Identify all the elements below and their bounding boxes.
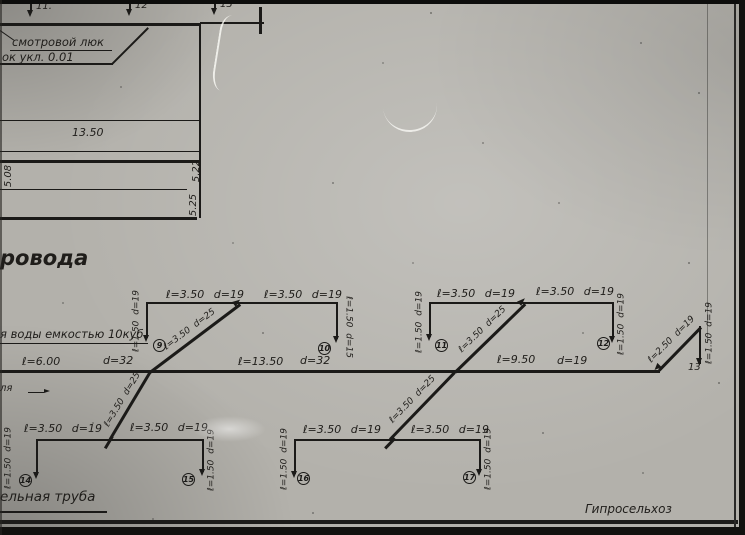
photo-edge-top [0, 0, 745, 4]
branchD-node-left: 16 [297, 472, 310, 485]
branchD-node-right: 17 [463, 471, 476, 484]
branchB-left-arrow-icon [426, 334, 432, 341]
branchC-left-arrow-icon [33, 472, 39, 479]
branchB-right-riser-label: ℓ=1.50 d=19 [618, 293, 627, 355]
branchB-left-riser [429, 302, 431, 337]
plan-marker-13-arrow-icon [211, 8, 217, 15]
plan-marker-11-arrow-icon [27, 10, 33, 17]
branchA-right-riser-label: ℓ=1.50 d=15 [344, 296, 353, 358]
main-seg2-diameter: d=32 [300, 355, 330, 366]
branchC-node-right: 15 [182, 473, 195, 486]
branchA-top-line [147, 302, 337, 304]
branchC-left-riser [36, 439, 38, 475]
branchA-diagonal-upper-label: ℓ=3.50 d=25 [163, 308, 218, 352]
plan-marker-12-arrow-icon [126, 9, 132, 16]
branchC-node-left: 14 [19, 474, 32, 487]
branchB-top-left-label: ℓ=3.50 d=19 [437, 288, 515, 299]
branchC-right-riser [202, 439, 204, 472]
branchB-left-riser-label: ℓ=1.50 d=19 [416, 291, 425, 353]
scheme-title-fragment: ровода [0, 248, 88, 269]
branchC-top-line [36, 439, 204, 441]
main-seg1-diameter: d=32 [103, 355, 133, 366]
plan-line-2-thick [0, 160, 200, 163]
main-seg3-diameter: d=19 [557, 355, 587, 366]
branchA-right-arrow-icon [333, 336, 339, 343]
plan-line-3 [0, 189, 187, 190]
photo-edge-right [739, 0, 745, 535]
end-node-label: 13 [688, 363, 701, 373]
branchC-top-left-label: ℓ=3.50 d=19 [24, 423, 102, 434]
branchA-left-riser-label: ℓ=1.50 d=19 [133, 290, 142, 352]
ground-arrow-icon [44, 389, 50, 393]
callout-diagonal-edge [111, 27, 148, 64]
plan-end-flange [259, 7, 262, 34]
branchA-top-left-label: ℓ=3.50 d=19 [166, 289, 244, 300]
branchA-top-right-label: ℓ=3.50 d=19 [264, 289, 342, 300]
photo-edge-bottom [0, 527, 745, 535]
plan-dim-width: 13.50 [72, 127, 104, 138]
branchD-right-riser-label: ℓ=1.50 d=19 [485, 428, 494, 490]
faint-right-line [707, 0, 708, 340]
photo-edge-left [0, 0, 2, 535]
plan-dim-left: 5.08 [4, 165, 14, 187]
branchB-node-left: 11 [435, 339, 448, 352]
ground-arrow-line [28, 392, 44, 393]
branchB-node-right: 12 [597, 337, 610, 350]
pipe-note-underline [0, 511, 107, 513]
branchA-left-riser [146, 302, 148, 338]
branchB-top-right-label: ℓ=3.50 d=19 [536, 286, 614, 297]
plan-dim-right-upper: 5.22 [192, 160, 202, 182]
branchD-right-arrow-icon [476, 469, 482, 476]
branchD-right-riser [479, 439, 481, 472]
frame-bottom-line [0, 520, 738, 524]
main-seg2-length: ℓ=13.50 [238, 356, 283, 367]
tank-note: я воды емкостью 10куб [0, 329, 143, 341]
callout-text-slope: ок укл. 0.01 [2, 52, 74, 64]
photo-scratch-2 [380, 77, 439, 134]
org-label: Гипросельхоз [585, 503, 672, 515]
plan-dim-right-lower: 5.25 [189, 194, 199, 216]
plan-line-0 [0, 120, 200, 121]
branchA-left-arrow-icon [143, 335, 149, 342]
photo-specks [0, 0, 2, 2]
plan-line-1 [0, 151, 200, 152]
branchD-top-line [294, 439, 481, 441]
photo-smudge [192, 416, 266, 442]
plan-vertical-wall [199, 25, 201, 218]
branchD-top-left-label: ℓ=3.50 d=19 [303, 424, 381, 435]
branchA-node-right: 10 [318, 342, 331, 355]
branchC-left-riser-label: ℓ=1.50 d=19 [5, 427, 14, 489]
photo-scratch-1 [210, 14, 252, 94]
tank-note-underline [0, 343, 148, 344]
branchD-top-right-label: ℓ=3.50 d=19 [411, 424, 489, 435]
branchD-left-riser [294, 439, 296, 474]
branchA-diagonal-upper [149, 303, 241, 373]
frame-right-line [734, 0, 736, 527]
pipe-note: ельная труба [0, 491, 95, 505]
plan-wall-line-thick [0, 23, 201, 26]
plan-line-4-thick [0, 217, 197, 220]
main-pipe-line [0, 370, 660, 373]
main-seg3-length: ℓ=9.50 [497, 354, 535, 365]
branchB-right-riser [612, 302, 614, 339]
branchD-left-riser-label: ℓ=1.50 d=19 [281, 428, 290, 490]
branchC-junction-tick [104, 436, 113, 449]
scanned-pipeline-drawing: 11. 12 13 смотровой люк ок укл. 0.01 13.… [0, 0, 745, 535]
branchC-right-arrow-icon [199, 469, 205, 476]
main-seg1-length: ℓ=6.00 [22, 356, 60, 367]
callout-text-hatch: смотровой люк [12, 37, 104, 49]
branchA-right-riser [336, 302, 338, 339]
